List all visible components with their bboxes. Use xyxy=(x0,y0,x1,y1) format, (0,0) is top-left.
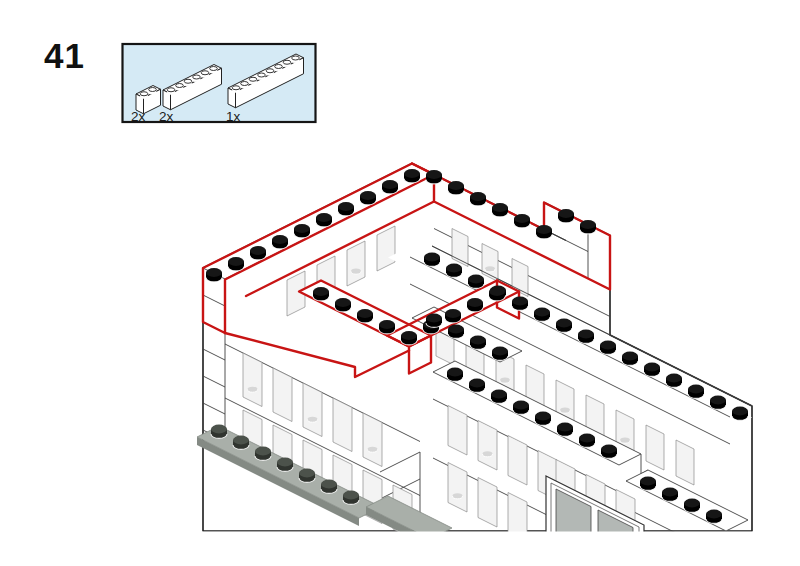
part-quantity-1x6: 2x xyxy=(159,109,174,124)
instruction-illustration: 2x 2x 1x xyxy=(0,0,800,566)
parts-callout: 2x 2x 1x xyxy=(123,44,316,124)
page-crop xyxy=(0,532,800,566)
instruction-page: 41 2x 2x 1x xyxy=(0,0,800,566)
part-quantity-1x8: 1x xyxy=(226,109,241,124)
part-quantity-1x2: 2x xyxy=(131,109,146,124)
